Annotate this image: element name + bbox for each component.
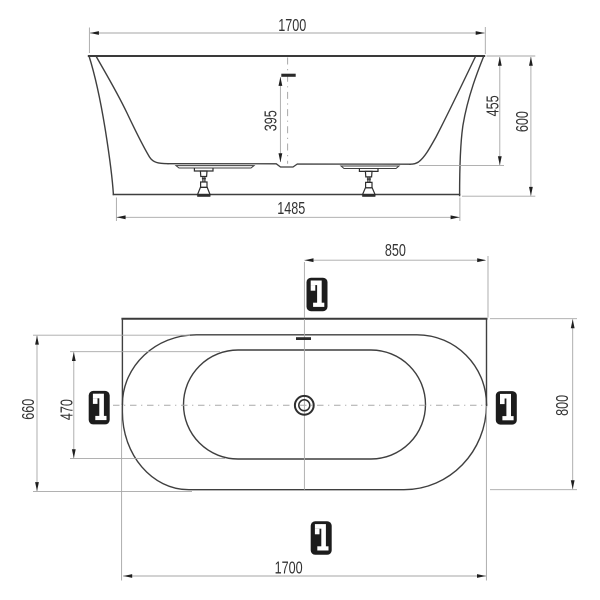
svg-text:660: 660 (19, 398, 39, 419)
svg-text:455: 455 (483, 95, 503, 116)
svg-text:850: 850 (385, 241, 406, 261)
svg-text:1700: 1700 (275, 559, 303, 579)
svg-text:600: 600 (513, 111, 533, 132)
svg-text:470: 470 (58, 399, 78, 420)
svg-text:1485: 1485 (277, 199, 305, 219)
svg-text:395: 395 (262, 110, 282, 131)
svg-text:800: 800 (553, 395, 573, 416)
svg-text:1700: 1700 (278, 16, 306, 36)
